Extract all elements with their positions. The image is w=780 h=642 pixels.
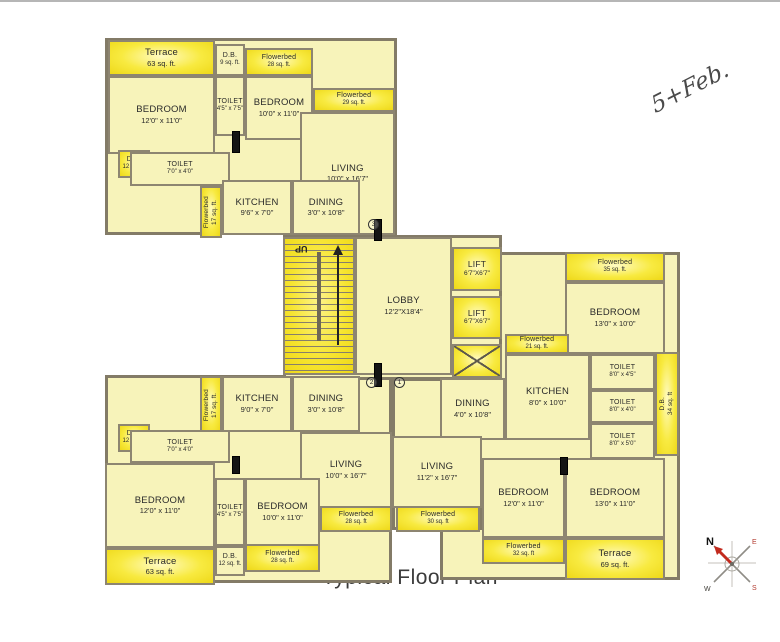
db-bl-terrace: D.B.12 sq. ft. (215, 546, 245, 576)
dining-tl-dimensions: 3'0" x 10'8" (308, 208, 345, 217)
bedroom-bl-2: BEDROOM10'0" x 11'0" (245, 478, 320, 546)
db-top-left-upper-label: D.B. (223, 52, 237, 60)
flowerbed-bottom-mid-left: Flowerbed28 sq. ft (320, 506, 392, 532)
db-top-left-upper-dimensions: 9 sq. ft. (220, 60, 240, 67)
compass-w: W (704, 586, 711, 593)
living-bl-dimensions: 10'0" x 16'7" (325, 471, 366, 480)
flowerbed-bl-bottom-label: Flowerbed (265, 550, 299, 558)
bedroom-tl-2-label: BEDROOM (254, 98, 305, 109)
toilet-right-3-label: TOILET (610, 433, 636, 441)
scan-artifact-line (0, 0, 780, 2)
flowerbed-bottom-mid-right-label: Flowerbed (421, 511, 455, 519)
living-right-dimensions: 11'2" x 16'7" (417, 473, 458, 482)
bedroom-tl-1: BEDROOM12'0" x 11'0" (108, 76, 215, 154)
living-tl-label: LIVING (331, 164, 363, 175)
toilet-tl-1-dimensions: 4'5" x 7'5" (217, 106, 243, 113)
db-right: D.B.34 sq. ft (655, 352, 679, 456)
flowerbed-top-left-dimensions: 28 sq. ft. (267, 62, 290, 69)
kitchen-tl-label: KITCHEN (235, 198, 278, 209)
bedroom-right-top: BEDROOM13'0" x 10'0" (565, 282, 665, 354)
flowerbed-right-top: Flowerbed35 sq. ft. (565, 252, 665, 282)
flowerbed-tl-side-label: Flowerbed (203, 196, 210, 228)
flowerbed-tl-side: Flowerbed17 sq. ft. (200, 186, 222, 238)
stair-divider (317, 252, 321, 340)
duct-shaft (452, 344, 502, 378)
dining-bl-dimensions: 3'0" x 10'8" (308, 405, 345, 414)
door-leaf-5 (560, 457, 568, 475)
toilet-right-1: TOILET8'0" x 4'5" (590, 354, 655, 390)
kitchen-bl-label: KITCHEN (235, 394, 278, 405)
bedroom-bl-1: BEDROOM12'0" x 11'0" (105, 463, 215, 548)
toilet-bl-1: TOILET4'5" x 7'5" (215, 478, 245, 546)
compass-e: E (752, 539, 757, 546)
dining-right-label: DINING (455, 399, 489, 410)
bedroom-bottom-right-1-dimensions: 12'0" x 11'0" (503, 499, 544, 508)
door-leaf-4 (232, 456, 240, 474)
bedroom-bl-1-label: BEDROOM (135, 496, 186, 507)
toilet-tl-2-dimensions: 7'0" x 4'0" (167, 169, 193, 176)
living-bl-label: LIVING (330, 460, 362, 471)
flowerbed-right-kitchen-label: Flowerbed (520, 336, 554, 344)
toilet-right-2: TOILET8'0" x 4'0" (590, 390, 655, 423)
kitchen-right: KITCHEN8'0" x 10'0" (505, 354, 590, 440)
dining-right-dimensions: 4'0" x 10'8" (454, 410, 491, 419)
flat-entry-number-2: 2 (366, 377, 377, 388)
flowerbed-top-living-dimensions: 29 sq. ft. (342, 100, 365, 107)
flowerbed-right-kitchen-dimensions: 21 sq. ft. (525, 344, 548, 351)
terrace-bottom-left: Terrace63 sq. ft. (105, 548, 215, 585)
flowerbed-tl-side-dimensions: 17 sq. ft. (211, 200, 219, 225)
bedroom-bottom-right-1: BEDROOM12'0" x 11'0" (482, 458, 565, 538)
staircase: UP (283, 237, 355, 375)
toilet-tl-2-label: TOILET (167, 161, 193, 169)
stair-up-arrow-icon (337, 249, 339, 345)
flowerbed-bottom-mid-left-label: Flowerbed (339, 511, 373, 519)
flowerbed-bl-side: Flowerbed17 sq. ft. (200, 376, 222, 434)
dining-tl: DINING3'0" x 10'8" (292, 180, 360, 235)
flowerbed-bl-side-dimensions: 17 sq. ft. (211, 393, 219, 418)
compass-s: S (752, 585, 757, 592)
terrace-top-left-dimensions: 63 sq. ft. (147, 59, 176, 68)
bedroom-bottom-right-2: BEDROOM13'0" x 11'0" (565, 458, 665, 538)
flowerbed-bottom-right: Flowerbed32 sq. ft (482, 538, 565, 564)
flat-entry-number-1: 1 (394, 377, 405, 388)
toilet-right-3: TOILET8'0" x 5'0" (590, 423, 655, 459)
toilet-bl-1-dimensions: 4'5" x 7'5" (217, 512, 243, 519)
terrace-bottom-right-dimensions: 69 sq. ft. (601, 560, 630, 569)
bedroom-bottom-right-1-label: BEDROOM (498, 488, 549, 499)
bedroom-tl-2-dimensions: 10'0" x 11'0" (259, 109, 300, 118)
living-right-label: LIVING (421, 462, 453, 473)
dining-bl-label: DINING (309, 394, 343, 405)
flowerbed-right-top-dimensions: 35 sq. ft. (603, 267, 626, 274)
toilet-bl-2-label: TOILET (167, 439, 193, 447)
db-top-left-upper: D.B.9 sq. ft. (215, 44, 245, 76)
kitchen-bl-dimensions: 9'0" x 7'0" (241, 405, 274, 414)
flowerbed-right-kitchen: Flowerbed21 sq. ft. (505, 334, 569, 354)
toilet-right-1-label: TOILET (610, 364, 636, 372)
toilet-bl-1-label: TOILET (217, 504, 243, 512)
lift-2-dimensions: 6'7"X6'7" (464, 318, 490, 326)
toilet-right-2-label: TOILET (610, 399, 636, 407)
toilet-tl-2: TOILET7'0" x 4'0" (130, 152, 230, 186)
kitchen-bl: KITCHEN9'0" x 7'0" (222, 376, 292, 432)
handwritten-date-note: 5+Feb. (648, 31, 780, 119)
bedroom-bl-2-label: BEDROOM (257, 502, 308, 513)
terrace-bottom-right: Terrace69 sq. ft. (565, 538, 665, 580)
flowerbed-bottom-right-label: Flowerbed (506, 543, 540, 551)
lift-2-label: LIFT (468, 309, 486, 319)
dining-tl-label: DINING (309, 198, 343, 209)
bedroom-right-top-label: BEDROOM (590, 308, 641, 319)
kitchen-tl-dimensions: 9'6" x 7'0" (241, 208, 274, 217)
toilet-tl-1-label: TOILET (217, 98, 243, 106)
dining-right: DINING4'0" x 10'8" (440, 378, 505, 440)
bedroom-bl-1-dimensions: 12'0" x 11'0" (140, 506, 181, 515)
compass-rose: N E S W (698, 530, 764, 600)
flowerbed-top-living-label: Flowerbed (337, 92, 371, 100)
flowerbed-top-living: Flowerbed29 sq. ft. (313, 88, 395, 112)
flowerbed-bl-bottom: Flowerbed28 sq. ft. (245, 544, 320, 572)
db-right-label: D.B. (659, 397, 666, 410)
flowerbed-bottom-mid-right-dimensions: 30 sq. ft (427, 519, 448, 526)
lift-2: LIFT6'7"X6'7" (452, 296, 502, 339)
flowerbed-bl-side-label: Flowerbed (203, 389, 210, 421)
kitchen-right-label: KITCHEN (526, 387, 569, 398)
toilet-right-2-dimensions: 8'0" x 4'0" (609, 407, 635, 414)
floor-plan-canvas: Typical Floor Plan 5+Feb. N E S W Terrac… (0, 0, 780, 642)
flowerbed-bottom-mid-left-dimensions: 28 sq. ft (345, 519, 366, 526)
flowerbed-bottom-right-dimensions: 32 sq. ft (513, 551, 534, 558)
terrace-top-left: Terrace63 sq. ft. (108, 40, 215, 76)
lobby-dimensions: 12'2"X18'4" (384, 307, 422, 316)
bedroom-tl-1-label: BEDROOM (136, 105, 187, 116)
terrace-top-left-label: Terrace (145, 48, 178, 59)
toilet-right-1-dimensions: 8'0" x 4'5" (609, 372, 635, 379)
terrace-bottom-left-label: Terrace (143, 557, 176, 568)
flowerbed-top-left-label: Flowerbed (262, 54, 296, 62)
bedroom-tl-1-dimensions: 12'0" x 11'0" (141, 116, 182, 125)
toilet-tl-1: TOILET4'5" x 7'5" (215, 76, 245, 136)
kitchen-right-dimensions: 8'0" x 10'0" (529, 398, 566, 407)
dining-bl: DINING3'0" x 10'8" (292, 376, 360, 432)
flowerbed-right-top-label: Flowerbed (598, 259, 632, 267)
terrace-bottom-right-label: Terrace (598, 549, 631, 560)
flowerbed-bl-bottom-dimensions: 28 sq. ft. (271, 558, 294, 565)
toilet-bl-2: TOILET7'0" x 4'0" (130, 430, 230, 463)
bedroom-right-top-dimensions: 13'0" x 10'0" (594, 319, 635, 328)
db-right-dimensions: 34 sq. ft (667, 392, 675, 415)
bedroom-bottom-right-2-label: BEDROOM (590, 488, 641, 499)
bedroom-bl-2-dimensions: 10'0" x 11'0" (262, 513, 303, 522)
toilet-right-3-dimensions: 8'0" x 5'0" (609, 441, 635, 448)
db-bl-terrace-dimensions: 12 sq. ft. (218, 561, 241, 568)
terrace-bottom-left-dimensions: 63 sq. ft. (146, 567, 175, 576)
lift-1: LIFT6'7"X6'7" (452, 247, 502, 291)
stair-up-label: UP (295, 244, 308, 254)
lift-1-dimensions: 6'7"X6'7" (464, 270, 490, 278)
kitchen-tl: KITCHEN9'6" x 7'0" (222, 180, 292, 235)
compass-n: N (706, 536, 714, 548)
db-bl-terrace-label: D.B. (223, 553, 237, 561)
toilet-bl-2-dimensions: 7'0" x 4'0" (167, 447, 193, 454)
flowerbed-bottom-mid-right: Flowerbed30 sq. ft (396, 506, 480, 532)
lobby: LOBBY12'2"X18'4" (355, 237, 452, 375)
flat-entry-number-3: 3 (368, 219, 379, 230)
flowerbed-top-left: Flowerbed28 sq. ft. (245, 48, 313, 76)
lift-1-label: LIFT (468, 260, 486, 270)
bedroom-bottom-right-2-dimensions: 13'0" x 11'0" (595, 499, 636, 508)
living-right: LIVING11'2" x 16'7" (392, 436, 482, 508)
lobby-label: LOBBY (387, 296, 420, 307)
door-leaf-1 (232, 131, 240, 153)
